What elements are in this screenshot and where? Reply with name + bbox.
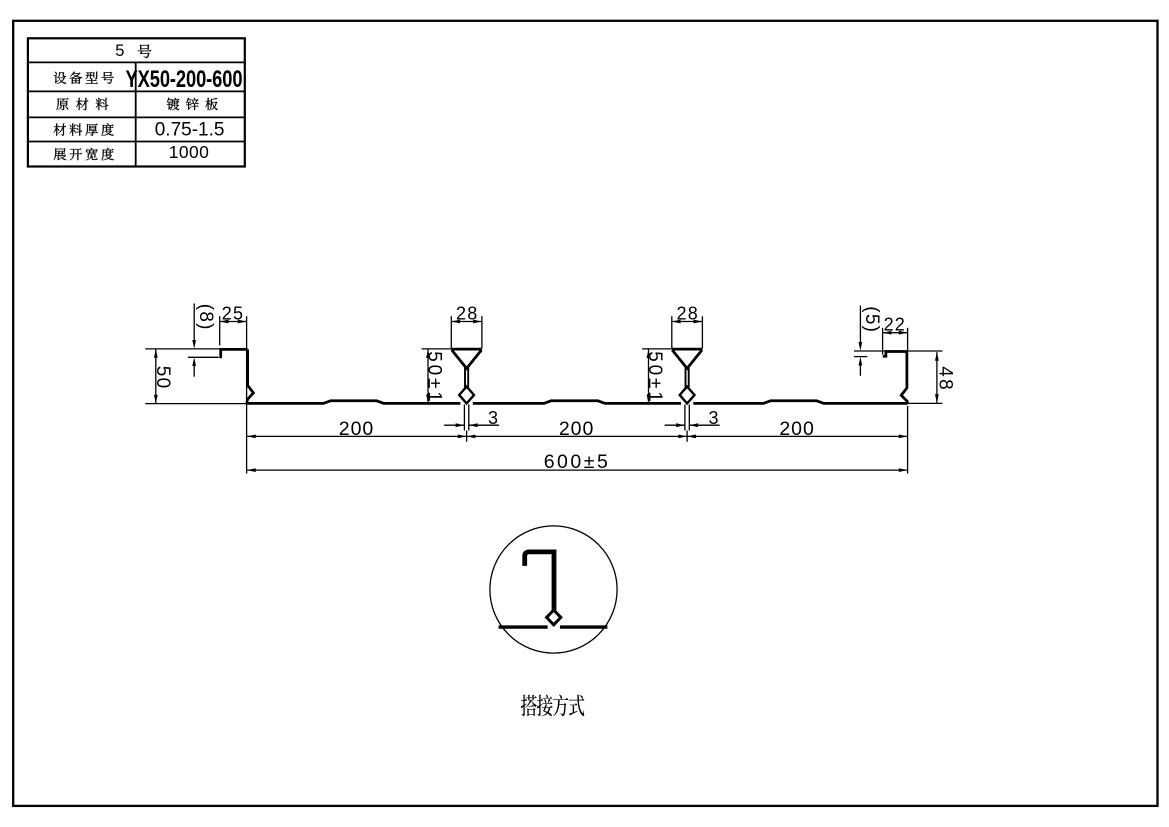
svg-text:25: 25: [222, 304, 244, 324]
svg-text:200: 200: [559, 418, 595, 440]
svg-text:(8): (8): [195, 304, 216, 331]
svg-text:50: 50: [152, 366, 173, 390]
svg-text:3: 3: [708, 408, 719, 428]
svg-text:1000: 1000: [169, 142, 210, 162]
svg-text:3: 3: [488, 408, 499, 428]
svg-text:22: 22: [884, 315, 906, 335]
svg-text:600±5: 600±5: [544, 451, 611, 473]
svg-text:50±1: 50±1: [423, 351, 444, 404]
svg-text:28: 28: [676, 304, 698, 324]
svg-text:0.75-1.5: 0.75-1.5: [155, 119, 225, 140]
svg-text:200: 200: [779, 418, 815, 440]
svg-text:(5): (5): [861, 306, 882, 333]
svg-text:48: 48: [935, 366, 956, 392]
svg-text:YX50-200-600: YX50-200-600: [126, 66, 243, 93]
svg-text:5: 5: [115, 42, 124, 60]
svg-text:200: 200: [339, 418, 375, 440]
svg-text:50±1: 50±1: [644, 351, 665, 404]
svg-text:28: 28: [456, 304, 478, 324]
